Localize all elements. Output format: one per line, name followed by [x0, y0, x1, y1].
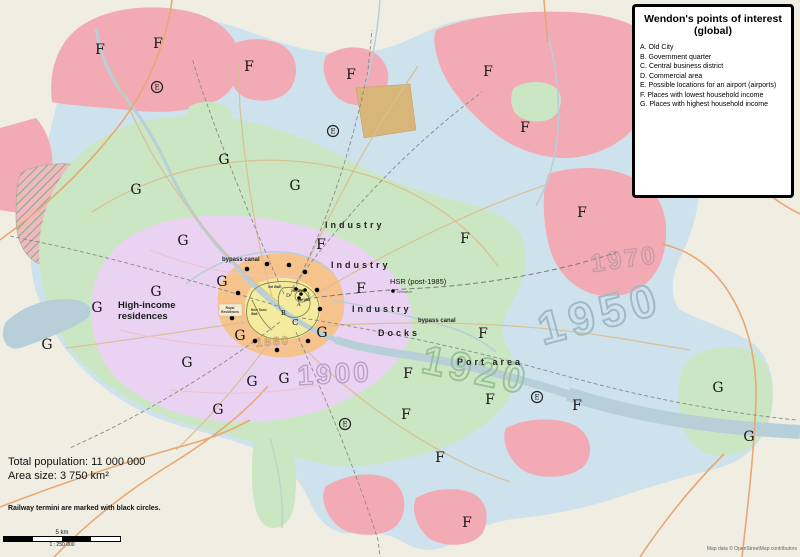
- g-marker: G: [177, 233, 188, 249]
- g-marker: G: [712, 380, 723, 396]
- f-marker: F: [244, 59, 254, 75]
- label-industry-3: Industry: [352, 304, 412, 314]
- g-marker: G: [743, 429, 754, 445]
- hsr-station-dot: [391, 289, 395, 293]
- f-marker: F: [485, 392, 495, 408]
- legend-item-d: D. Commercial area: [640, 72, 786, 82]
- scale-ratio: 1 : 250 000: [3, 542, 121, 548]
- label-wall-2nd: 2nd Wall: [291, 289, 304, 293]
- airport-marker-letter: E: [534, 394, 539, 402]
- f-marker: F: [403, 366, 413, 382]
- label-poi-b: B: [281, 309, 286, 317]
- g-marker: G: [234, 328, 245, 344]
- f-marker: F: [95, 42, 105, 58]
- label-poi-c: C: [292, 318, 299, 328]
- year-1900: 1900: [297, 356, 373, 391]
- region-brown: [356, 84, 416, 138]
- f-marker: F: [346, 67, 356, 83]
- g-marker: G: [216, 274, 227, 290]
- legend-panel: Wendon's points of interest (global) A. …: [632, 4, 794, 198]
- f-marker: F: [478, 326, 488, 342]
- legend-item-g: G. Places with highest household income: [640, 100, 786, 110]
- label-high-income-1: High-income: [118, 300, 176, 311]
- label-hsr: HSR (post-1985): [390, 277, 447, 286]
- f-marker: F: [435, 450, 445, 466]
- label-bypass-canal-1: bypass canal: [222, 257, 260, 263]
- airport-marker-letter: E: [154, 84, 159, 92]
- label-port-area: Port area: [457, 357, 523, 367]
- area-size: Area size: 3 750 km²: [8, 469, 161, 483]
- label-docks: Docks: [378, 328, 420, 338]
- label-royal-2: Residences: [221, 310, 239, 314]
- scale-bar: 5 km 1 : 250 000: [3, 530, 121, 548]
- legend-item-c: C. Central business district: [640, 62, 786, 72]
- f-marker: F: [401, 407, 411, 423]
- label-industry-1: Industry: [325, 220, 385, 230]
- f-marker: F: [577, 205, 587, 221]
- g-marker: G: [41, 337, 52, 353]
- stats-block: Total population: 11 000 000 Area size: …: [8, 455, 161, 512]
- label-wall-3rd: 3rd Wall: [268, 285, 280, 289]
- g-marker: G: [212, 402, 223, 418]
- label-bypass-canal-2: bypass canal: [418, 318, 456, 324]
- f-marker: F: [316, 237, 326, 253]
- legend-item-b: B. Government quarter: [640, 53, 786, 63]
- airport-marker-letter: E: [330, 128, 335, 136]
- f-marker: F: [520, 120, 530, 136]
- g-marker: G: [218, 152, 229, 168]
- f-marker: F: [460, 231, 470, 247]
- g-marker: G: [181, 355, 192, 371]
- total-population: Total population: 11 000 000: [8, 455, 161, 469]
- legend-item-a: A. Old City: [640, 43, 786, 53]
- f-marker: F: [483, 64, 493, 80]
- legend-item-f: F. Places with lowest household income: [640, 91, 786, 101]
- label-new-town-wall-2: Wall: [251, 312, 258, 316]
- label-high-income-2: residences: [118, 311, 168, 322]
- label-industry-2: Industry: [331, 260, 391, 270]
- f-marker: F: [462, 515, 472, 531]
- g-marker: G: [246, 374, 257, 390]
- g-marker: G: [91, 300, 102, 316]
- legend-item-e: E. Possible locations for an airport (ai…: [640, 81, 786, 91]
- g-marker: G: [289, 178, 300, 194]
- map-page: 1880 1900 1920 1950 1970 F F F F F F F F…: [0, 0, 800, 557]
- g-marker: G: [278, 371, 289, 387]
- f-marker: F: [153, 36, 163, 52]
- f-marker: F: [356, 281, 366, 297]
- label-hsr-station: Wendon: [397, 289, 413, 294]
- termini-note: Railway termini are marked with black ci…: [8, 505, 161, 512]
- legend-title: Wendon's points of interest (global): [640, 13, 786, 37]
- g-marker: G: [316, 325, 327, 341]
- label-poi-d: D: [286, 293, 290, 299]
- label-poi-a: A: [296, 302, 301, 308]
- g-marker: G: [150, 284, 161, 300]
- map-attribution: Map data © OpenStreetMap contributors: [707, 546, 797, 552]
- airport-marker-letter: E: [342, 421, 347, 429]
- f-marker: F: [572, 398, 582, 414]
- g-marker: G: [130, 182, 141, 198]
